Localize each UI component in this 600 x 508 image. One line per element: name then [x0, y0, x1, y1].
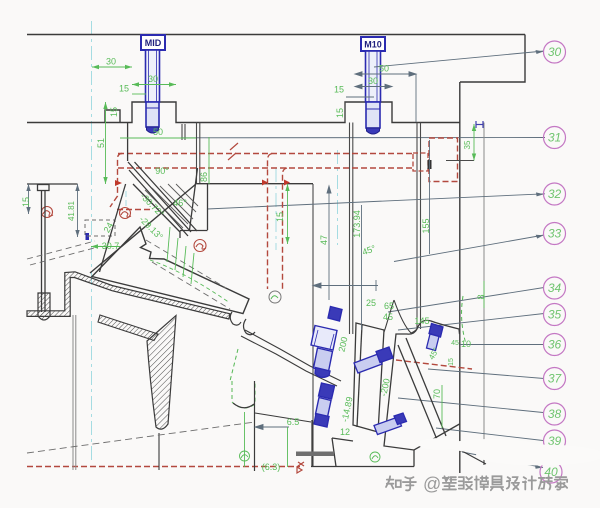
- svg-text:(6.3): (6.3): [262, 462, 281, 472]
- svg-text:10: 10: [461, 339, 471, 349]
- svg-text:15: 15: [275, 212, 285, 222]
- svg-text:38: 38: [548, 407, 562, 421]
- svg-text:145: 145: [414, 316, 429, 326]
- svg-text:41.81: 41.81: [67, 200, 76, 221]
- svg-text:-30.7: -30.7: [99, 241, 120, 251]
- svg-text:51: 51: [96, 138, 106, 148]
- svg-text:25: 25: [366, 298, 376, 308]
- svg-text:12: 12: [340, 427, 350, 437]
- svg-text:15: 15: [334, 85, 344, 95]
- svg-text:70: 70: [432, 389, 442, 399]
- svg-text:30: 30: [106, 57, 116, 67]
- svg-text:47: 47: [319, 235, 329, 245]
- svg-text:15: 15: [21, 197, 31, 207]
- svg-text:46°: 46°: [173, 198, 187, 208]
- svg-text:MID: MID: [145, 38, 162, 48]
- svg-text:37: 37: [548, 372, 563, 386]
- svg-text:15: 15: [448, 358, 455, 366]
- svg-text:33: 33: [548, 227, 562, 241]
- svg-text:30: 30: [368, 76, 378, 86]
- svg-text:65: 65: [384, 301, 394, 311]
- svg-text:31: 31: [548, 131, 561, 145]
- svg-text:6.5: 6.5: [287, 417, 300, 427]
- svg-text:30: 30: [148, 74, 158, 84]
- svg-text:86: 86: [199, 172, 209, 182]
- svg-text:35: 35: [463, 140, 472, 149]
- svg-text:45: 45: [451, 340, 459, 347]
- svg-text:@: @: [423, 474, 441, 494]
- svg-text:15: 15: [119, 84, 129, 94]
- svg-text:45: 45: [383, 312, 393, 322]
- svg-text:173.94: 173.94: [352, 210, 362, 238]
- svg-text:8: 8: [476, 294, 486, 299]
- svg-text:32: 32: [548, 187, 562, 201]
- svg-text:M10: M10: [364, 40, 382, 50]
- svg-text:35: 35: [548, 308, 562, 322]
- svg-text:30: 30: [548, 45, 562, 59]
- svg-text:34: 34: [548, 281, 562, 295]
- svg-text:50: 50: [379, 64, 389, 74]
- svg-text:155: 155: [421, 218, 431, 233]
- svg-text:15: 15: [109, 107, 119, 117]
- svg-text:36: 36: [548, 338, 562, 352]
- svg-text:90°: 90°: [155, 166, 169, 176]
- svg-text:50: 50: [153, 127, 163, 137]
- svg-text:15: 15: [335, 108, 345, 118]
